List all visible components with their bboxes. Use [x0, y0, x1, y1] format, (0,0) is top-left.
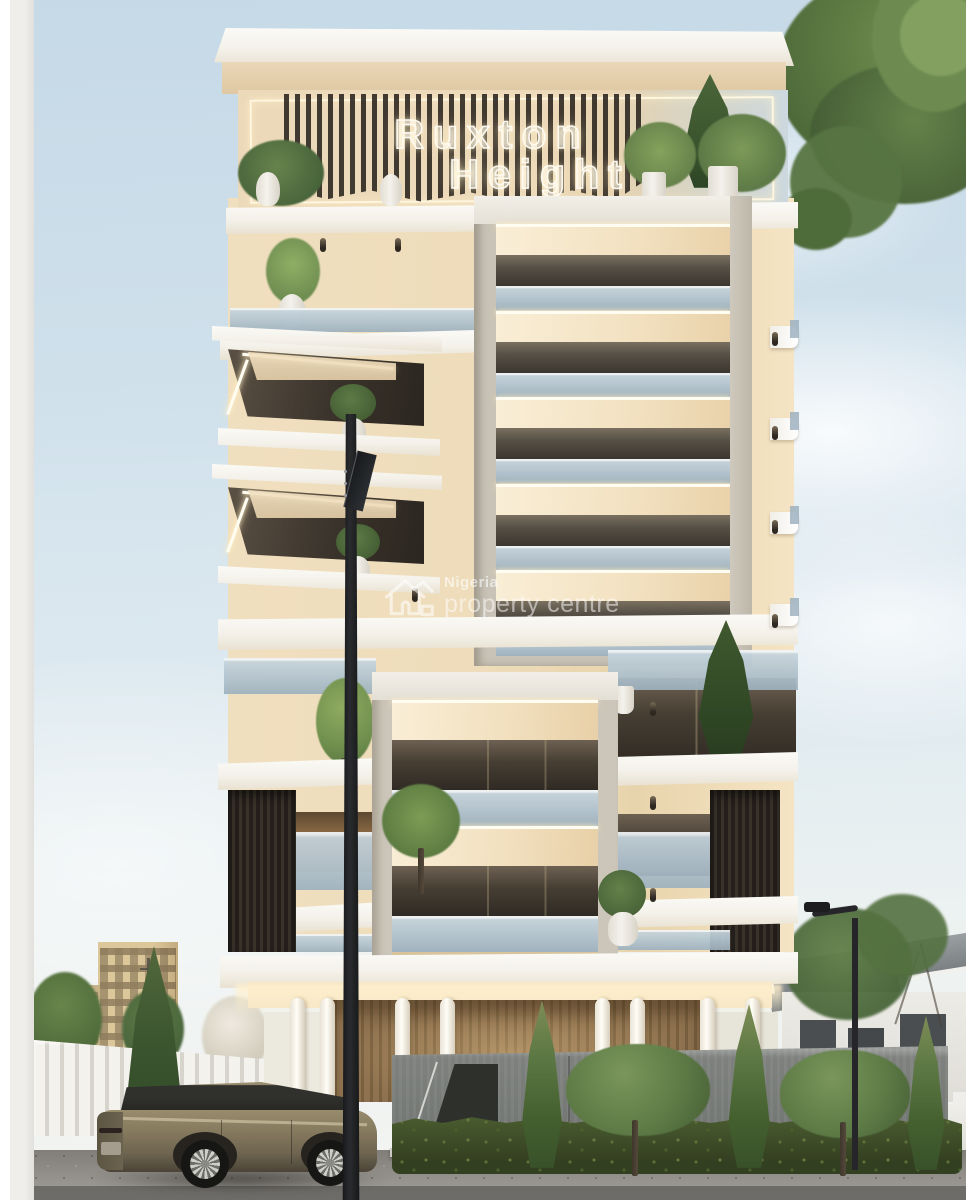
lamppost-indicator-dot — [344, 470, 347, 473]
wall-sconce-lamp — [395, 238, 401, 252]
lamp-head — [804, 902, 830, 912]
lamppost-indicator-dot — [344, 494, 347, 497]
house-outline-icon — [380, 568, 436, 622]
wall-sconce-lamp — [320, 238, 326, 252]
wall-sconce-lamp — [772, 332, 778, 346]
lamp-pole — [852, 918, 858, 1170]
wall-sconce-lamp — [650, 888, 656, 902]
car-wheel-cap — [326, 1159, 334, 1167]
car-door-seam — [291, 1120, 292, 1164]
tree-canopy — [566, 1044, 710, 1136]
wall-sconce-lamp — [650, 796, 656, 810]
car-rear-face — [97, 1112, 123, 1170]
wall-sconce-lamp — [772, 520, 778, 534]
car-wheel-cap — [201, 1160, 209, 1168]
wall-sconce-lamp — [772, 426, 778, 440]
tree-trunk — [632, 1120, 638, 1176]
watermark: Nigeria property centre — [380, 566, 610, 626]
street-lamppost-foreground — [336, 414, 366, 1200]
ruxton-height-building: Ruxton Height — [212, 26, 804, 1088]
front-tree — [566, 1044, 716, 1174]
wall-sconce-lamp — [650, 702, 656, 716]
architectural-render-scene: Ruxton Height — [0, 0, 966, 1200]
left-border-strip — [0, 0, 34, 1200]
watermark-brand: property centre — [444, 590, 620, 619]
overhanging-tree-top-right — [782, 0, 966, 286]
car-taillight — [99, 1128, 122, 1133]
wall-sconces — [212, 26, 804, 1088]
watermark-country: Nigeria — [444, 574, 498, 591]
lamppost-pole — [338, 414, 364, 1200]
car-wheel — [181, 1140, 229, 1188]
street-lamp-right — [800, 896, 870, 1170]
wall-sconce-lamp — [772, 614, 778, 628]
car-license-plate — [101, 1142, 121, 1155]
lamppost-indicator-dot — [344, 482, 347, 485]
